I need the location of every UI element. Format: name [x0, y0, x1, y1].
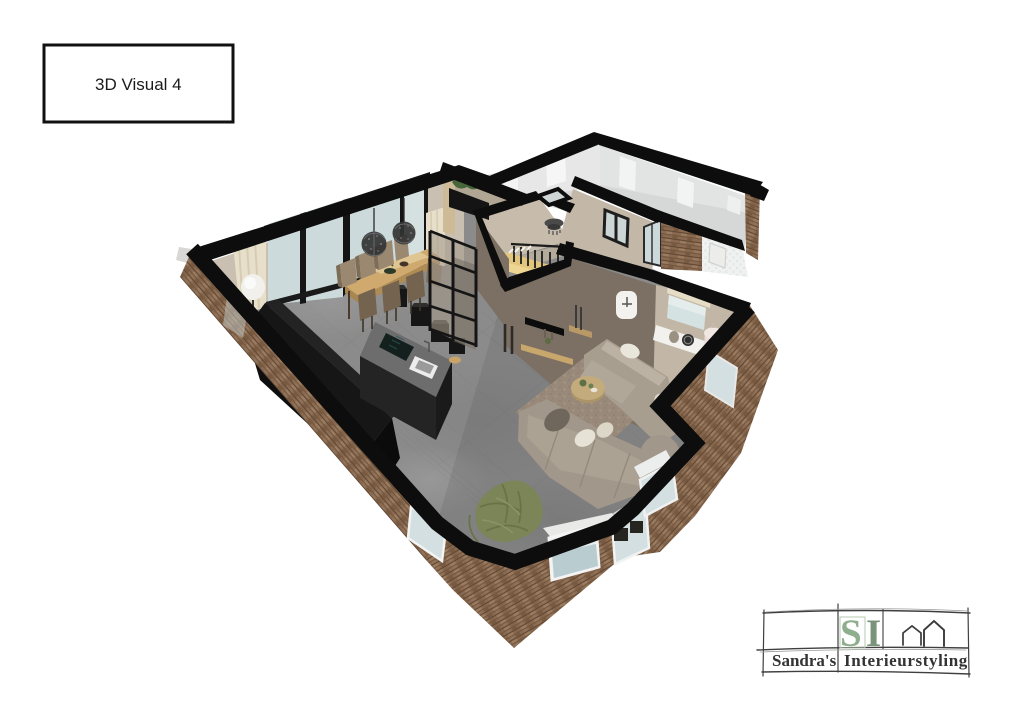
- svg-text:S: S: [840, 612, 862, 655]
- svg-text:Interieurstyling: Interieurstyling: [844, 651, 968, 670]
- svg-text:I: I: [866, 612, 881, 655]
- svg-text:Sandra's: Sandra's: [772, 651, 837, 670]
- svg-text:3D Visual 4: 3D Visual 4: [95, 75, 182, 94]
